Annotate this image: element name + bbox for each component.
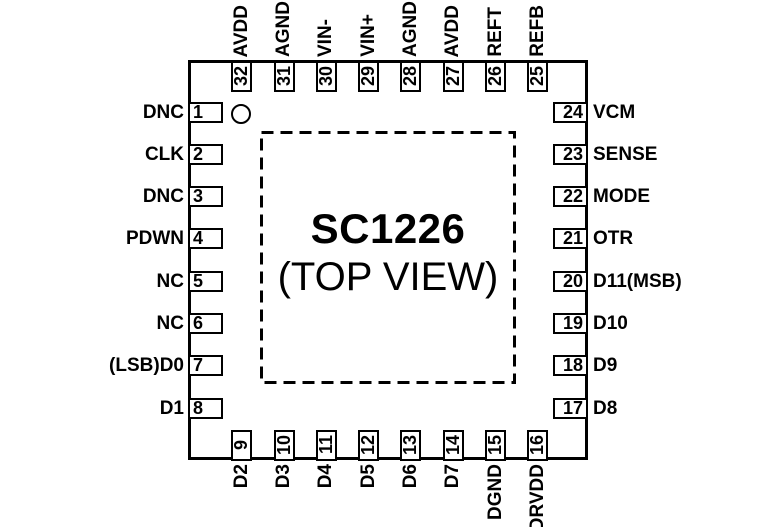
pin-number: 16 [527,435,548,455]
pin-label: MODE [593,186,650,207]
pin-box: 32 [231,61,252,92]
pin-box: 9 [231,430,252,461]
pin-box: 27 [443,61,464,92]
pin-label: DRVDD [527,464,549,527]
pin-box: 29 [358,61,379,92]
pin-box: 6 [188,313,223,334]
pin-number: 29 [358,66,379,86]
pin-number: 7 [193,355,203,376]
pin-number: 8 [193,398,203,419]
chip-title-block: SC1226 (TOP VIEW) [260,206,516,302]
pin-label: REFT [485,7,507,57]
pin-label: DGND [485,464,507,520]
pin-number: 4 [193,228,203,249]
pin-number: 27 [443,66,464,86]
pin-box: 23 [553,144,588,165]
pin-label: D10 [593,313,628,334]
pin-box: 15 [485,430,506,461]
view-label: (TOP VIEW) [260,252,516,302]
pin-label-wrap: VIN+ [348,0,389,57]
pinout-diagram: SC1226 (TOP VIEW) 1DNC2CLK3DNC4PDWN5NC6N… [0,0,777,527]
pin-label-wrap: DRVDD [517,464,558,527]
pin-number: 32 [231,66,252,86]
pin-label-wrap: AGND [264,0,305,57]
pin-label-wrap: DGND [475,464,516,527]
pin-label: SENSE [593,144,657,165]
pin-box: 21 [553,228,588,249]
pin-label-wrap: D5 [348,464,389,527]
pin-number: 17 [563,398,583,419]
pin-box: 19 [553,313,588,334]
pin-label-wrap: AVDD [221,0,262,57]
pin-box: 11 [316,430,337,461]
pin-number: 19 [563,313,583,334]
pin-label: PDWN [0,228,184,249]
pin-number: 13 [400,435,421,455]
pin-label: AGND [400,1,422,57]
pin-label-wrap: REFB [517,0,558,57]
pin-number: 20 [563,271,583,292]
pin-label: CLK [0,144,184,165]
pin-number: 5 [193,271,203,292]
pin-number: 9 [231,440,252,450]
pin-label: NC [0,313,184,334]
pin-label: D9 [593,355,617,376]
pin-label: OTR [593,228,633,249]
pin-box: 25 [527,61,548,92]
pin-box: 24 [553,102,588,123]
pin-label: D1 [0,398,184,419]
pin-label-wrap: AVDD [433,0,474,57]
pin-label: D3 [273,464,295,488]
pin-box: 2 [188,144,223,165]
pin-number: 26 [485,66,506,86]
pin-number: 1 [193,102,203,123]
pin-label: AGND [273,1,295,57]
pin-label-wrap: D2 [221,464,262,527]
pin-number: 15 [485,435,506,455]
pin-label: DNC [0,186,184,207]
pin-box: 8 [188,398,223,419]
pin-number: 28 [400,66,421,86]
pin-box: 28 [400,61,421,92]
pin-box: 7 [188,355,223,376]
pin-label: AVDD [442,5,464,57]
pin-number: 10 [274,435,295,455]
pin-box: 20 [553,271,588,292]
pin-box: 3 [188,186,223,207]
pin-box: 26 [485,61,506,92]
pin-label-wrap: VIN- [306,0,347,57]
pin-box: 10 [274,430,295,461]
pin-label-wrap: AGND [390,0,431,57]
pin-box: 30 [316,61,337,92]
pin-box: 12 [358,430,379,461]
pin-label: D11(MSB) [593,271,682,292]
pin-box: 22 [553,186,588,207]
pin-number: 6 [193,313,203,334]
pin-label: NC [0,271,184,292]
pin-number: 11 [316,435,337,454]
pin-number: 12 [358,435,379,455]
pin-number: 24 [563,102,583,123]
part-number: SC1226 [260,206,516,252]
pin-number: 22 [563,186,583,207]
pin-label-wrap: D3 [264,464,305,527]
pin-number: 23 [563,144,583,165]
pin-box: 13 [400,430,421,461]
pin-number: 30 [316,66,337,86]
pin-label: AVDD [231,5,253,57]
pin-box: 1 [188,102,223,123]
pin-box: 17 [553,398,588,419]
pin-label: (LSB)D0 [0,355,184,376]
pin-box: 14 [443,430,464,461]
pin-number: 25 [527,66,548,86]
pin-label-wrap: D6 [390,464,431,527]
pin-label: D6 [400,464,422,488]
pin-label-wrap: REFT [475,0,516,57]
pin-label-wrap: D4 [306,464,347,527]
pin-label: D7 [442,464,464,488]
pin-number: 21 [563,228,583,249]
pin1-indicator-circle [231,104,251,124]
pin-label-wrap: D7 [433,464,474,527]
pin-box: 18 [553,355,588,376]
pin-label: D5 [358,464,380,488]
pin-number: 2 [193,144,203,165]
pin-label: VIN- [315,19,337,57]
pin-label: D2 [231,464,253,488]
pin-number: 31 [274,66,295,86]
pin-number: 14 [443,435,464,455]
pin-number: 3 [193,186,203,207]
pin-label: D4 [315,464,337,488]
pin-number: 18 [563,355,583,376]
pin-label: VCM [593,102,635,123]
pin-label: VIN+ [358,14,380,57]
pin-box: 5 [188,271,223,292]
pin-label: DNC [0,102,184,123]
pin-label: D8 [593,398,617,419]
pin-box: 31 [274,61,295,92]
pin-box: 16 [527,430,548,461]
pin-label: REFB [527,5,549,57]
pin-box: 4 [188,228,223,249]
